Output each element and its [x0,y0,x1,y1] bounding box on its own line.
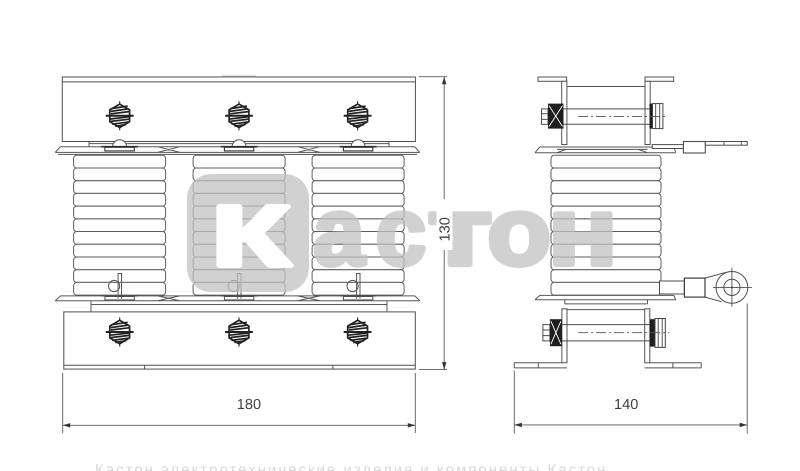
svg-text:с: с [376,179,426,286]
svg-text:о: о [487,179,551,286]
svg-text:а: а [313,179,365,286]
svg-text:140: 140 [614,397,638,413]
svg-text:Кастон электротехнические изде: Кастон электротехнические изделия и комп… [95,462,607,471]
svg-text:н: н [548,179,618,286]
svg-text:130: 130 [437,217,453,241]
svg-text:180: 180 [237,397,261,413]
svg-text:К: К [212,189,291,285]
